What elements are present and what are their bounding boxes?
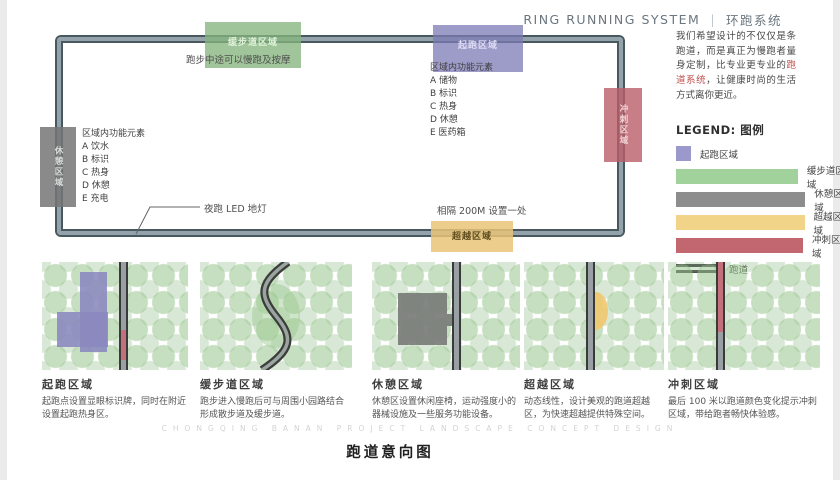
legend-item-sprint: 冲刺区域 [676, 238, 840, 253]
card-slow-path-zone: 缓步道区域 跑步进入慢跑后可与周围小园路结合形成散步道及缓步道。 [200, 262, 352, 430]
rest-pavilion-shape [398, 293, 447, 345]
card-rest-zone: 休憩区域 休憩区设置休闲座椅，运动强度小的器械设施及一些服务功能设备。 [372, 262, 520, 430]
card-title: 缓步道区域 [200, 376, 352, 392]
legend-title: LEGEND: 图例 [676, 122, 840, 138]
feature-item: C 热身 [430, 101, 493, 114]
feature-item: A 储物 [430, 75, 493, 88]
header-divider: | [710, 12, 716, 27]
zone-patch-overtake: 超越区域 [431, 221, 513, 252]
feature-item: E 医药箱 [430, 127, 493, 140]
diagram-slow-path-zone [200, 262, 352, 370]
legend-label: 冲刺区域 [812, 232, 840, 260]
card-title: 超越区域 [524, 376, 664, 392]
legend-item-slow-path: 缓步道区域 [676, 169, 840, 184]
card-title: 冲刺区域 [668, 376, 820, 392]
diagram-overtake-zone [524, 262, 664, 370]
zone-patch-rest: 休憩区域 [40, 127, 76, 207]
zone-label: 超越区域 [431, 229, 513, 242]
legend-item-start: 起跑区域 [676, 146, 840, 161]
diagram-rest-zone [372, 262, 520, 370]
legend-swatch-overtake [676, 215, 805, 230]
annotation-led: 夜跑 LED 地灯 [204, 201, 267, 215]
feature-item: D 休憩 [430, 114, 493, 127]
track-segment [119, 262, 128, 370]
card-title: 起跑区域 [42, 376, 188, 392]
card-title: 休憩区域 [372, 376, 520, 392]
track-segment [452, 262, 461, 370]
header-title-en: RING RUNNING SYSTEM [523, 12, 700, 27]
feature-item: D 休憩 [82, 180, 145, 193]
legend-swatch-rest [676, 192, 805, 207]
card-desc: 跑步进入慢跑后可与周围小园路结合形成散步道及缓步道。 [200, 396, 352, 422]
card-desc: 起跑点设置显眼标识牌，同时在附近设置起跑热身区。 [42, 396, 188, 422]
card-desc: 动态线性，设计美观的跑道超越区，为快速超越提供特殊空间。 [524, 396, 664, 422]
intro-paragraph: 我们希望设计的不仅仅是条跑道，而是真正为慢跑者量身定制，比专业更专业的跑道系统，… [676, 30, 796, 104]
card-start-zone: 起跑区域 起跑点设置显眼标识牌，同时在附近设置起跑热身区。 [42, 262, 188, 430]
zone-label: 冲刺区域 [604, 88, 642, 162]
s-curve-track [200, 262, 352, 370]
feature-list-title: 区域内功能元素 [430, 62, 493, 75]
legend-swatch-sprint [676, 238, 803, 253]
card-desc: 休憩区设置休闲座椅，运动强度小的器械设施及一些服务功能设备。 [372, 396, 520, 422]
zone-label: 起跑区域 [433, 38, 523, 51]
slide-canvas: RING RUNNING SYSTEM | 环跑系统 缓步道区域 起跑区域 休憩… [0, 0, 840, 480]
track-segment [586, 262, 595, 370]
card-overtake-zone: 超越区域 动态线性，设计美观的跑道超越区，为快速超越提供特殊空间。 [524, 262, 664, 430]
zone-label: 缓步道区域 [205, 35, 301, 48]
feature-list-title: 区域内功能元素 [82, 128, 145, 141]
track-red-segment [716, 262, 725, 332]
track-segment [716, 262, 725, 370]
watermark-text: CHONGQING BANAN PROJECT LANDSCAPE CONCEP… [40, 424, 800, 433]
left-edge-strip [0, 0, 7, 480]
legend-item-overtake: 超越区域 [676, 215, 840, 230]
feature-item: A 饮水 [82, 141, 145, 154]
legend-label: 起跑区域 [700, 147, 738, 161]
feature-item: B 标识 [430, 88, 493, 101]
legend: LEGEND: 图例 起跑区域 缓步道区域 休憩区域 超越区域 冲刺区域 跑道 [676, 122, 840, 276]
diagram-start-zone [42, 262, 188, 370]
feature-item: C 热身 [82, 167, 145, 180]
annotation-massage: 跑步中途可以慢跑及按摩 [186, 52, 291, 66]
intro-text: 我们希望设计的不仅仅是条跑道，而是真正为慢跑者量身定制，比专业更专业的 [676, 31, 796, 71]
overtake-bulge-shape [595, 292, 608, 330]
feature-item: B 标识 [82, 154, 145, 167]
annotation-spacing: 相隔 200M 设置一处 [437, 203, 526, 217]
feature-list-rest-zone: 区域内功能元素 A 饮水 B 标识 C 热身 D 休憩 E 充电 [82, 128, 145, 206]
zone-label: 休憩区域 [40, 127, 76, 207]
feature-list-start-zone: 区域内功能元素 A 储物 B 标识 C 热身 D 休憩 E 医药箱 [430, 62, 493, 140]
track-red-segment [119, 330, 128, 360]
zone-patch-sprint: 冲刺区域 [604, 88, 642, 162]
diagram-sprint-zone [668, 262, 820, 370]
building-shape [57, 312, 108, 347]
legend-swatch-slow-path [676, 169, 798, 184]
legend-swatch-start [676, 146, 691, 161]
card-desc: 最后 100 米以跑道颜色变化提示冲刺区域，带给跑者畅快体验感。 [668, 396, 820, 422]
legend-item-rest: 休憩区域 [676, 192, 840, 207]
card-sprint-zone: 冲刺区域 最后 100 米以跑道颜色变化提示冲刺区域，带给跑者畅快体验感。 [668, 262, 820, 430]
header-title-zh: 环跑系统 [726, 10, 782, 29]
page-caption: 跑道意向图 [0, 441, 780, 462]
page-header: RING RUNNING SYSTEM | 环跑系统 [523, 10, 782, 29]
